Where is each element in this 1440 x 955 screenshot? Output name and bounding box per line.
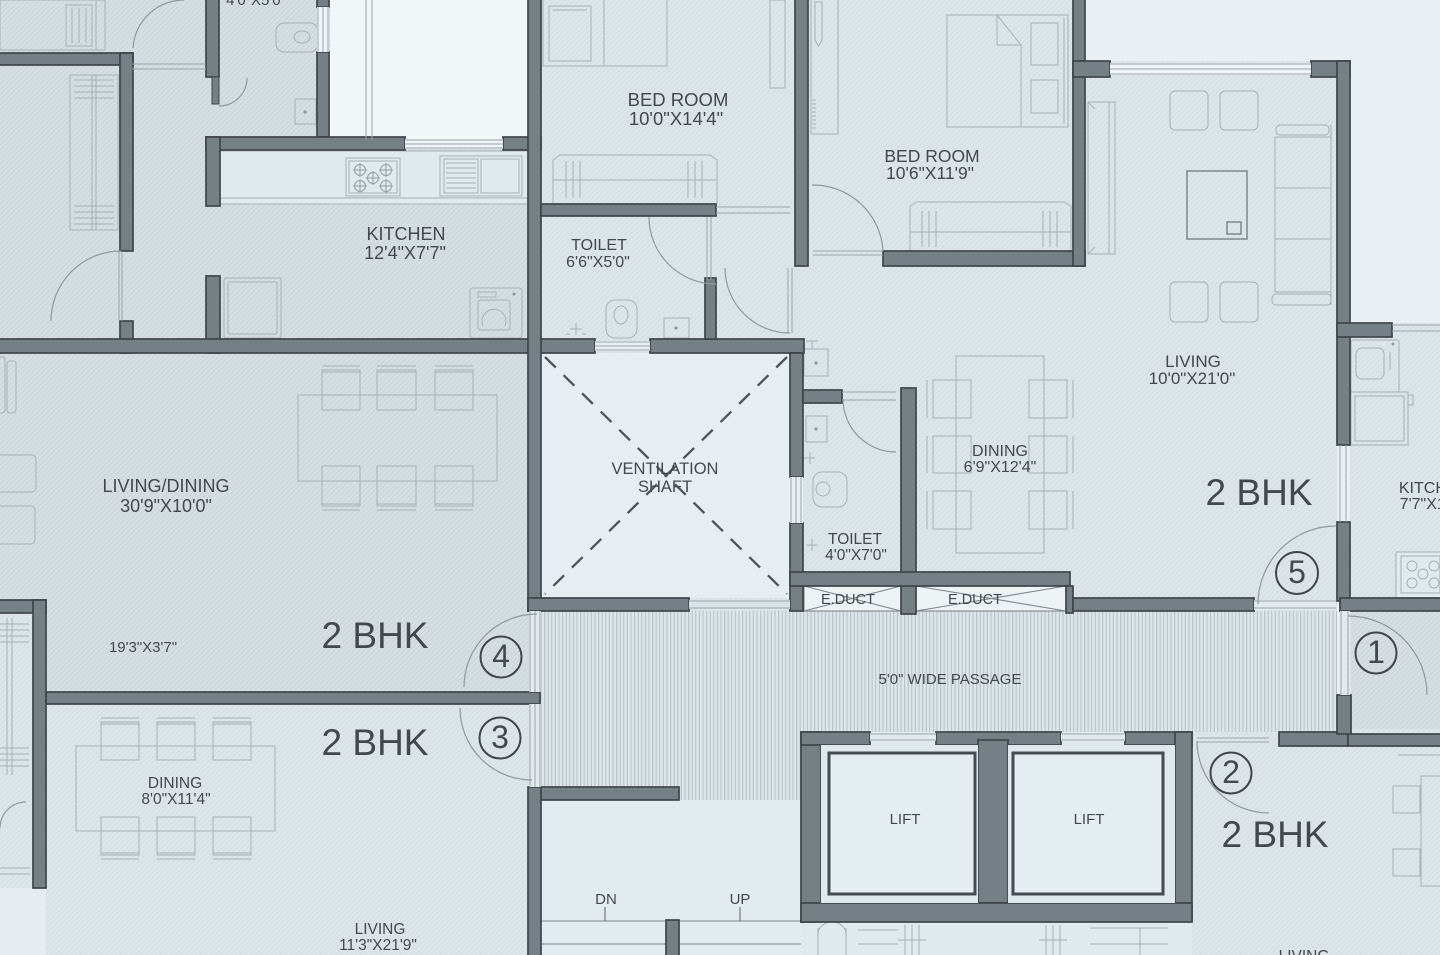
svg-text:6'6"X5'0": 6'6"X5'0" [566, 254, 630, 271]
svg-text:TOILET: TOILET [828, 531, 883, 548]
svg-text:4'0"X7'0": 4'0"X7'0" [825, 547, 887, 564]
svg-text:10'0"X21'0": 10'0"X21'0" [1149, 369, 1236, 388]
svg-text:2 BHK: 2 BHK [322, 722, 429, 763]
svg-text:TOILET: TOILET [571, 237, 627, 254]
svg-text:2 BHK: 2 BHK [1206, 472, 1313, 513]
svg-text:5'0" WIDE PASSAGE: 5'0" WIDE PASSAGE [879, 671, 1022, 688]
svg-text:10'0"X14'4": 10'0"X14'4" [629, 108, 723, 129]
svg-text:4'0"X5'0": 4'0"X5'0" [226, 0, 286, 9]
svg-text:11'3"X21'9": 11'3"X21'9" [339, 937, 417, 954]
svg-text:LIFT: LIFT [1074, 811, 1105, 828]
svg-text:10'6"X11'9": 10'6"X11'9" [886, 163, 974, 183]
svg-text:E.DUCT: E.DUCT [821, 592, 875, 608]
svg-text:12'4"X7'7": 12'4"X7'7" [364, 243, 446, 263]
svg-text:KITCHEN: KITCHEN [1399, 480, 1440, 497]
svg-text:19'3"X3'7": 19'3"X3'7" [109, 639, 177, 656]
svg-text:30'9"X10'0": 30'9"X10'0" [120, 496, 212, 516]
svg-text:DINING: DINING [148, 775, 202, 792]
svg-text:LIVING/DINING: LIVING/DINING [102, 476, 229, 496]
svg-text:KITCHEN: KITCHEN [366, 224, 445, 244]
svg-text:E.DUCT: E.DUCT [948, 592, 1002, 608]
svg-text:SHAFT: SHAFT [638, 478, 692, 496]
svg-text:5: 5 [1288, 554, 1306, 590]
svg-text:VENTILATION: VENTILATION [612, 460, 719, 478]
svg-text:DN: DN [595, 891, 617, 908]
svg-text:7'7"X10'0": 7'7"X10'0" [1400, 496, 1440, 513]
svg-text:2 BHK: 2 BHK [322, 615, 429, 656]
svg-text:1: 1 [1367, 634, 1385, 670]
svg-text:DINING: DINING [972, 443, 1028, 460]
svg-text:UP: UP [730, 891, 751, 908]
svg-text:2 BHK: 2 BHK [1222, 814, 1329, 855]
svg-text:LIFT: LIFT [890, 811, 921, 828]
svg-text:BED ROOM: BED ROOM [628, 89, 729, 110]
svg-text:6'9"X12'4": 6'9"X12'4" [964, 459, 1037, 476]
svg-text:LIVING: LIVING [1279, 948, 1330, 955]
svg-text:8'0"X11'4": 8'0"X11'4" [141, 791, 210, 808]
svg-text:4: 4 [492, 638, 510, 674]
svg-text:3: 3 [491, 719, 509, 755]
svg-text:2: 2 [1222, 754, 1240, 790]
svg-text:LIVING: LIVING [355, 921, 406, 938]
